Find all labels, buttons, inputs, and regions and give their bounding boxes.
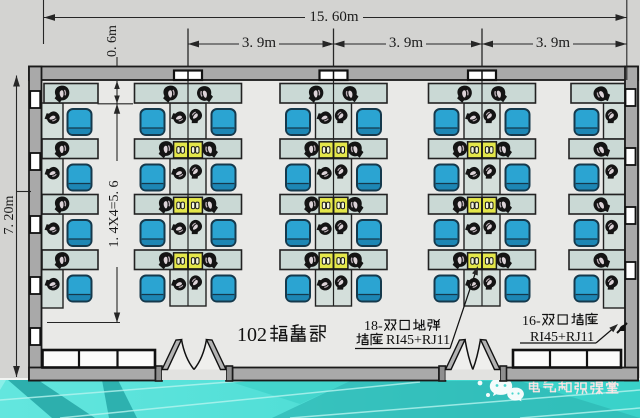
svg-text:0. 6m: 0. 6m — [105, 25, 120, 57]
svg-text:1. 4X4=5. 6: 1. 4X4=5. 6 — [107, 180, 122, 247]
svg-text:15. 60m: 15. 60m — [309, 9, 359, 25]
svg-text:RI45+RJ11: RI45+RJ11 — [386, 333, 450, 348]
svg-text:3. 9m: 3. 9m — [242, 35, 277, 51]
svg-text:3. 9m: 3. 9m — [389, 35, 424, 51]
svg-text:102: 102 — [237, 324, 267, 346]
svg-text:16-: 16- — [522, 314, 541, 329]
svg-text:3. 9m: 3. 9m — [536, 35, 571, 51]
svg-text:18-: 18- — [364, 319, 383, 334]
svg-text:7. 20m: 7. 20m — [2, 195, 17, 234]
